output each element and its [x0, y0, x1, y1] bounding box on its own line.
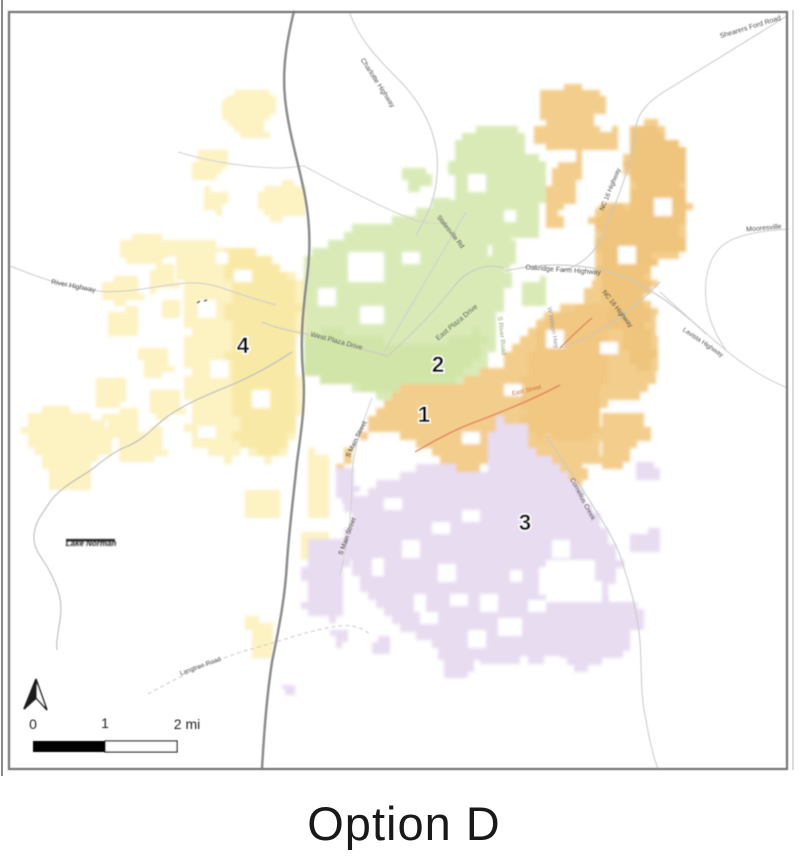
svg-text:1: 1 — [101, 715, 109, 731]
svg-text:2: 2 — [432, 352, 444, 377]
svg-text:2 mi: 2 mi — [174, 716, 200, 732]
svg-text:4: 4 — [237, 333, 250, 358]
svg-text:3: 3 — [519, 510, 531, 535]
svg-text:Option D: Option D — [307, 797, 500, 850]
svg-text:0: 0 — [29, 716, 37, 732]
svg-text:1: 1 — [418, 402, 430, 427]
